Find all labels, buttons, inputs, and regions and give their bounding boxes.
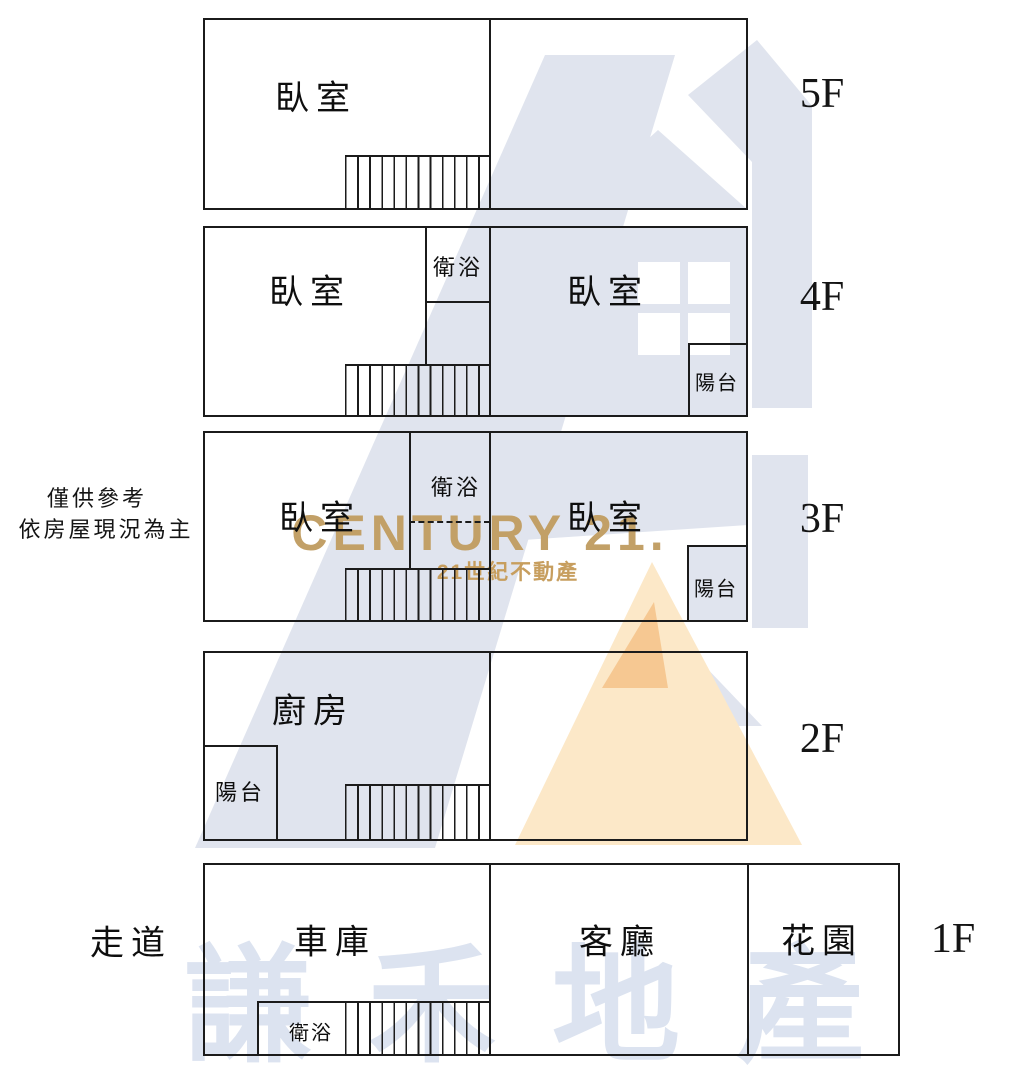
floor-label-5f: 5F (800, 70, 844, 118)
floor-3f-bath-dashed-wall (409, 521, 490, 523)
walkway-label: 走道 (90, 916, 172, 965)
floor-5f-stairs (345, 155, 490, 208)
room-label-balcony-2f: 陽台 (215, 775, 265, 807)
floor-label-1f: 1F (931, 915, 975, 963)
floor-4f-bath-partition (425, 226, 427, 364)
room-label-garage-1f: 車庫 (294, 915, 376, 964)
room-label-bedroom-left-4f: 臥室 (269, 265, 351, 314)
floor-1f-divider-living-garden (747, 863, 749, 1056)
reference-note-line1: 僅供參考 (47, 481, 147, 513)
room-label-bath-1f: 衛浴 (289, 1017, 333, 1046)
room-label-bedroom-right-3f: 臥室 (567, 491, 649, 540)
reference-note-line2: 依房屋現況為主 (18, 512, 193, 544)
floor-2f-stairs (345, 784, 490, 841)
room-label-bedroom-left-3f: 臥室 (279, 491, 361, 540)
room-label-balcony-4f: 陽台 (695, 367, 739, 396)
floor-3f-bath-partition (409, 431, 411, 568)
room-label-garden-1f: 花園 (781, 914, 863, 963)
floor-1f-stairs (345, 1001, 490, 1056)
floor-plan-canvas: CENTURY 21. 21世紀不動產 謙禾地產 僅供參考 依房屋現況為主 臥室… (0, 0, 1024, 1080)
room-label-bath-4f: 衛浴 (433, 250, 483, 282)
floor-4f-stairs (345, 364, 490, 417)
floor-label-3f: 3F (800, 495, 844, 543)
room-label-balcony-3f: 陽台 (694, 573, 738, 602)
room-label-bedroom-5f: 臥室 (275, 71, 357, 120)
floor-label-2f: 2F (800, 715, 844, 763)
floor-3f-stairs (345, 568, 490, 622)
room-label-bedroom-right-4f: 臥室 (567, 265, 649, 314)
room-label-bath-3f: 衛浴 (431, 470, 481, 502)
floor-label-4f: 4F (800, 273, 844, 321)
room-label-kitchen-2f: 廚房 (272, 684, 354, 733)
floor-4f-bath-bottom-wall (425, 301, 491, 303)
room-label-living-1f: 客廳 (579, 915, 661, 964)
